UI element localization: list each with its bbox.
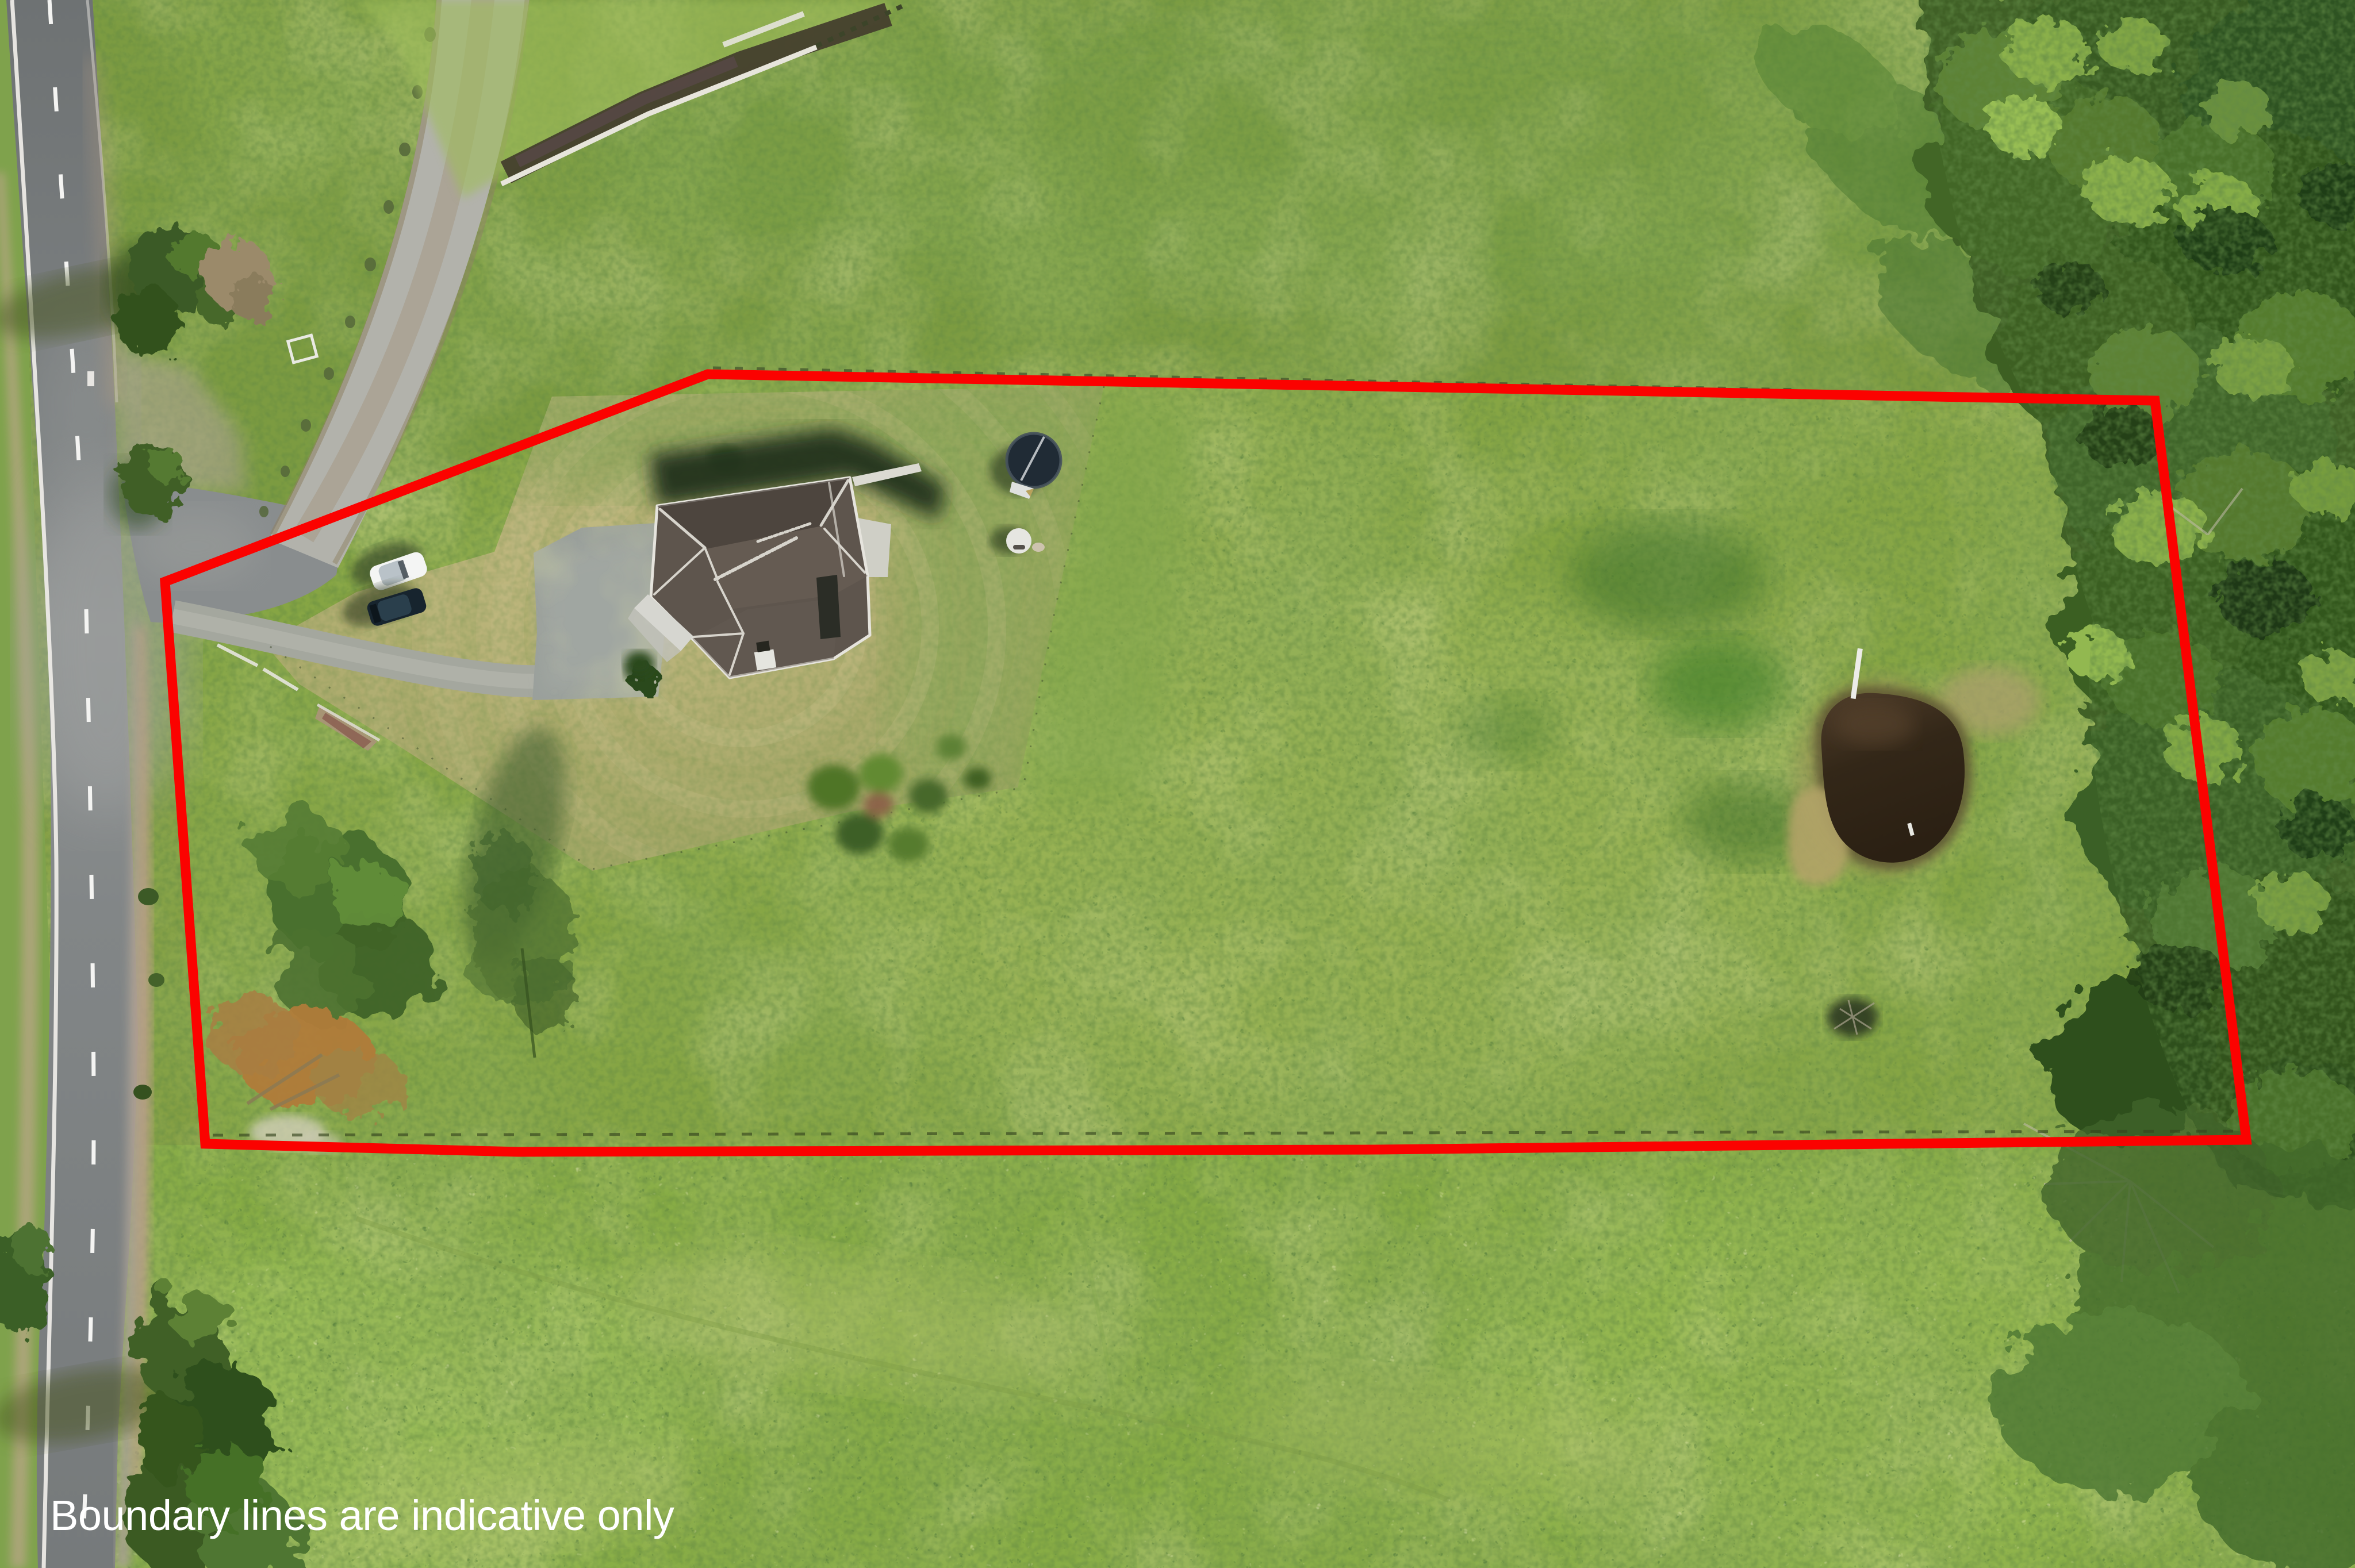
svg-text:Boundary lines are indicative: Boundary lines are indicative only [50, 1492, 674, 1539]
